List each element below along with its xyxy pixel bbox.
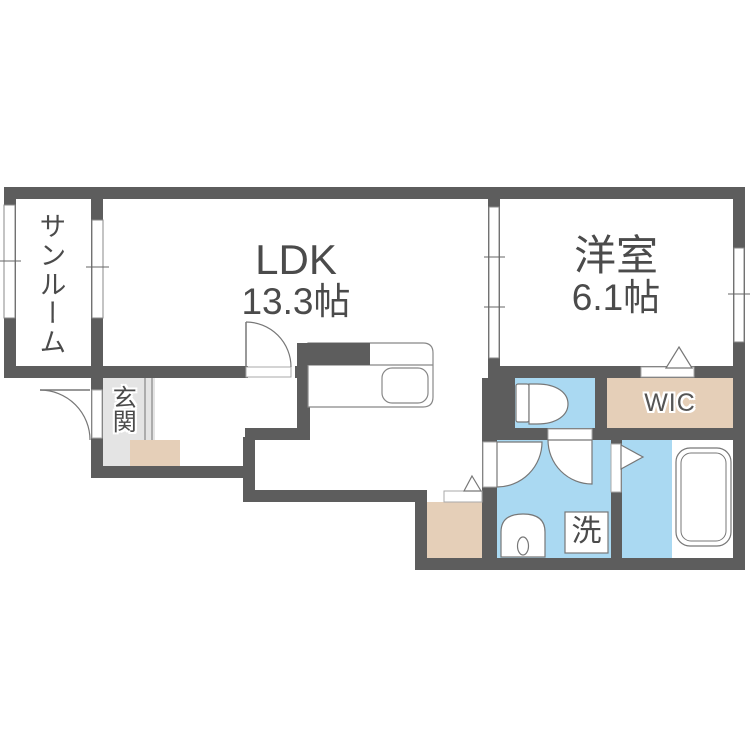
door-swing-icon	[40, 390, 90, 440]
bathtub-icon	[676, 448, 731, 546]
kitchen-counter-icon	[297, 343, 433, 407]
window-icon	[489, 207, 499, 358]
entrance-label: 玄関	[109, 385, 134, 433]
window-icon	[734, 248, 744, 342]
wall-top	[4, 187, 745, 199]
toilet-icon	[516, 384, 568, 424]
door-triangle-icon	[666, 347, 692, 368]
floorplan-drawing	[0, 0, 750, 750]
window-icon	[92, 220, 103, 318]
wall-right	[733, 187, 745, 570]
entrance-step	[130, 440, 180, 466]
wall-toilet-wic	[595, 378, 607, 428]
entrance-door-opening	[92, 390, 102, 438]
washroom-door-opening	[483, 442, 497, 487]
closet-door-opening	[444, 491, 482, 502]
kitchen-sink-icon	[382, 368, 428, 403]
western-room-label: 洋室	[518, 234, 714, 278]
sunroom-label: サンルーム	[36, 212, 64, 357]
wic-label: WIC	[607, 390, 733, 416]
washbasin-icon	[501, 514, 545, 557]
door-swing-icon	[246, 322, 291, 367]
western-room-area-label: 6.1帖	[518, 279, 714, 318]
ldk-door-opening	[246, 367, 291, 377]
wall-sunroom-bottom	[4, 366, 248, 378]
door-triangle-icon	[464, 476, 481, 491]
ldk-area-label: 13.3帖	[201, 283, 391, 322]
corridor-closet-floor	[425, 502, 488, 558]
laundry-label: 洗	[565, 516, 608, 548]
bath-door-opening	[611, 444, 621, 492]
wall-corridor-stub	[245, 428, 310, 440]
wall-hall-bottom	[91, 466, 255, 478]
floorplan-canvas: サンルーム LDK 13.3帖 洋室 6.1帖 玄関 WIC 洗	[0, 0, 750, 750]
ldk-label: LDK	[201, 238, 391, 282]
wall-bedroom-bottom	[488, 366, 745, 378]
wall-below-toilet-wic	[497, 428, 745, 440]
wall-bottom	[415, 558, 745, 570]
wall-corridor-bottom	[243, 490, 425, 502]
toilet-door-opening	[548, 429, 592, 440]
